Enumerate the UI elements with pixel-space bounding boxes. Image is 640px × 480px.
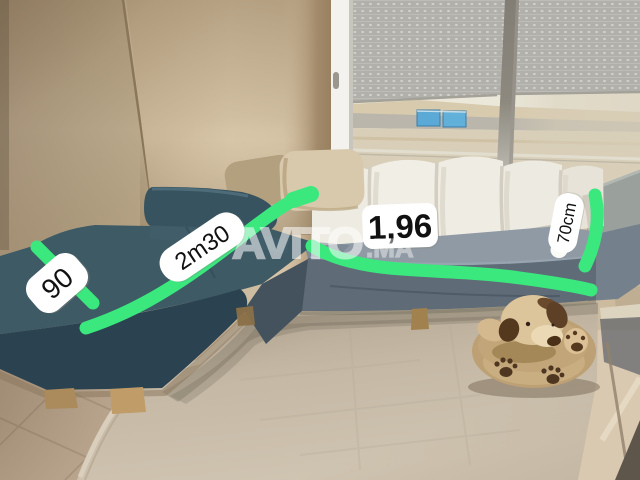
svg-text:AVITO: AVITO <box>232 219 362 268</box>
svg-text:.MA: .MA <box>366 233 414 263</box>
